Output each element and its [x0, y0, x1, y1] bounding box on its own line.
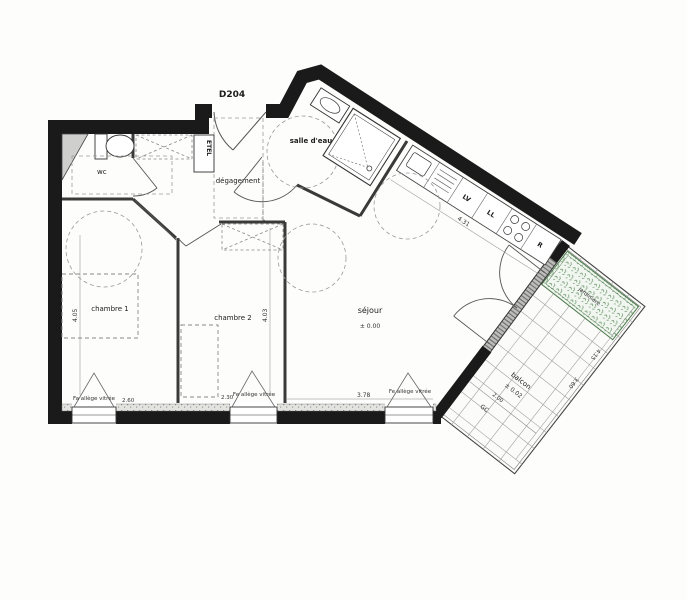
- wc-door: [133, 158, 157, 196]
- chambre1-door-leaf: [147, 211, 176, 240]
- salle-eau-label: salle d'eau: [290, 137, 332, 145]
- kitchen-wall-frame: LV LL R 4.31: [291, 87, 561, 288]
- chambre2-closet: [222, 224, 283, 250]
- salle-eau-door-arc: [234, 185, 297, 202]
- chambre1-depth-dim: 4.05: [72, 308, 79, 322]
- sejour-width-dim: 3.78: [357, 392, 371, 399]
- sejour-label: séjour: [358, 305, 383, 315]
- kitchen-wall-dim: 4.31: [456, 215, 471, 228]
- window-3-label: Fe allège vitrée: [389, 388, 432, 395]
- window-1-label: Fa allège vitrée: [73, 395, 116, 402]
- sejour-level: ± 0.00: [360, 323, 380, 330]
- chambre2-depth-dim: 4.03: [262, 308, 269, 322]
- chambre1-label: chambre 1: [91, 305, 129, 313]
- toilet: [95, 134, 134, 159]
- floor-plan-page: jardinière balcon ± 0.02 2.00 GC 4.15 3.…: [0, 0, 687, 600]
- chambre2-furniture: [181, 325, 218, 397]
- chambre1-clearance: [66, 211, 142, 287]
- duct-shaft: [62, 134, 88, 180]
- partitions: [133, 199, 285, 403]
- chambre2-door-leaf: [186, 224, 221, 246]
- chambre2-door: [178, 224, 221, 246]
- window-2-label: Fe allège vitrée: [233, 391, 276, 398]
- window-2-casement: [232, 371, 275, 407]
- salle-eau-door-leaf: [234, 157, 262, 192]
- wc-label: wc: [97, 168, 107, 176]
- toilet-tank: [95, 134, 107, 159]
- chambre1-room: chambre 1 4.05: [62, 211, 142, 395]
- unit-label: D204: [219, 90, 245, 100]
- window-1-dim: 2.60: [122, 398, 135, 404]
- wc-door-arc: [133, 188, 157, 196]
- hall-closet: [136, 135, 192, 159]
- sejour-clearance: [278, 224, 346, 292]
- etel-closet: ETEL: [194, 135, 214, 172]
- wc-door-leaf: [133, 158, 157, 188]
- wc-room: wc: [62, 134, 172, 199]
- degagement-label: dégagement: [216, 177, 261, 185]
- etel-label: ETEL: [205, 140, 212, 156]
- entry-clearance: [214, 118, 263, 218]
- sejour-room: séjour ± 0.00: [278, 173, 440, 330]
- french-door-leaf-2: [454, 316, 490, 344]
- chambre2-label: chambre 2: [214, 314, 252, 322]
- window-2-dim: 2.30: [221, 395, 234, 401]
- chambre2-room: chambre 2 4.03: [181, 224, 283, 397]
- toilet-bowl: [106, 135, 134, 157]
- salle-eau-wall-sw: [297, 185, 360, 216]
- floor-plan-svg: jardinière balcon ± 0.02 2.00 GC 4.15 3.…: [0, 0, 687, 600]
- degagement-sejour-boundary: [263, 162, 285, 224]
